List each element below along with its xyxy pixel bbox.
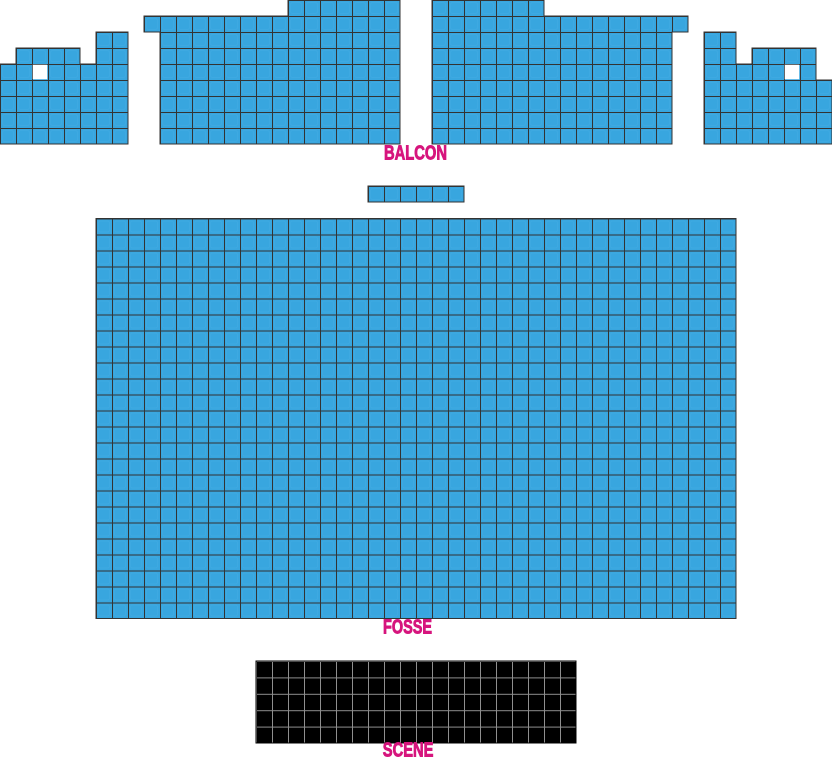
svg-text:FOSSE: FOSSE bbox=[383, 617, 432, 639]
svg-text:BALCON: BALCON bbox=[384, 143, 447, 165]
svg-text:SCENE: SCENE bbox=[383, 740, 434, 762]
